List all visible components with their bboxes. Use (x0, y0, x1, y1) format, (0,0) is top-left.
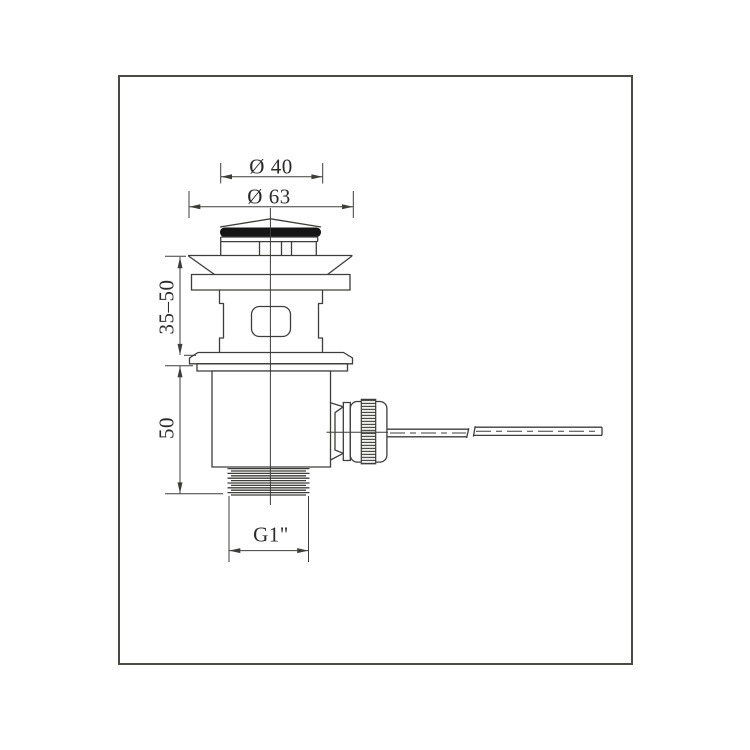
lower-height-label: 50 (155, 417, 180, 439)
pull-rod (387, 426, 602, 438)
thread-size-label: G1" (253, 523, 289, 548)
knurled-ring (361, 399, 375, 463)
overflow-window (252, 307, 291, 337)
cap-diameter-label: Ø 40 (249, 154, 292, 179)
rod-port (327, 399, 389, 463)
lower-flange (190, 353, 353, 372)
technical-drawing (0, 0, 750, 750)
page: Ø 40 Ø 63 35–50 50 G1" (0, 0, 750, 750)
flange-diameter-label: Ø 63 (247, 184, 290, 209)
lower-body (212, 371, 331, 467)
thread-section (228, 469, 310, 495)
upper-body (220, 290, 323, 353)
adjustable-height-label: 35–50 (155, 280, 180, 335)
